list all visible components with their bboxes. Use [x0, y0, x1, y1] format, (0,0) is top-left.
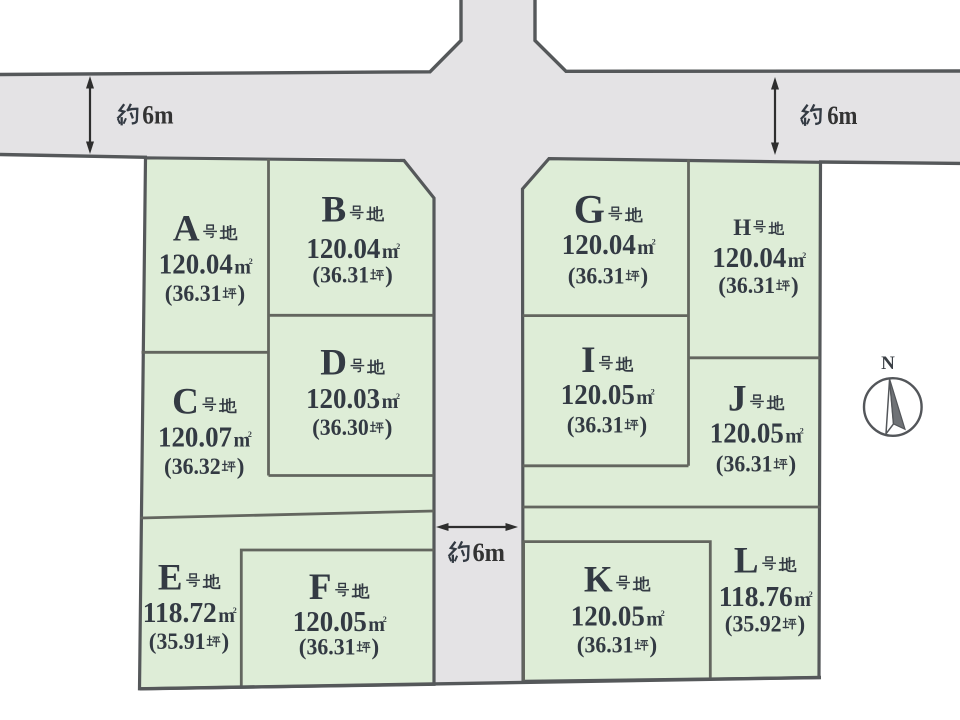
svg-text:2: 2 [661, 609, 665, 618]
svg-text:H: H [733, 215, 751, 240]
svg-text:): ) [238, 281, 246, 306]
svg-text:2: 2 [396, 392, 400, 401]
svg-text:): ) [640, 412, 648, 437]
svg-text:118.72: 118.72 [143, 597, 217, 629]
svg-text:2: 2 [802, 251, 806, 260]
svg-text:120.05: 120.05 [710, 418, 784, 450]
svg-text:): ) [791, 273, 799, 298]
svg-text:36.31: 36.31 [576, 263, 625, 288]
svg-text:): ) [650, 633, 658, 658]
svg-text:(: ( [568, 263, 576, 288]
svg-text:120.05: 120.05 [561, 379, 635, 411]
svg-text:120.05: 120.05 [293, 606, 367, 638]
svg-text:(: ( [164, 454, 172, 479]
svg-text:(: ( [299, 635, 307, 660]
svg-text:D: D [320, 343, 347, 384]
svg-text:K: K [584, 560, 613, 601]
svg-text:L: L [734, 540, 759, 581]
svg-text:36.31: 36.31 [726, 273, 775, 298]
svg-text:(: ( [312, 263, 320, 288]
svg-text:J: J [728, 379, 747, 420]
svg-text:): ) [222, 629, 230, 654]
svg-text:36.31: 36.31 [307, 635, 356, 660]
svg-text:(: ( [149, 629, 157, 654]
svg-text:2: 2 [383, 615, 387, 624]
svg-text:2: 2 [248, 430, 252, 439]
svg-text:G: G [574, 187, 605, 232]
svg-text:): ) [789, 452, 797, 477]
svg-text:I: I [581, 340, 595, 381]
svg-text:6m: 6m [827, 101, 858, 130]
svg-text:36.31: 36.31 [173, 281, 222, 306]
svg-text:): ) [798, 611, 806, 636]
svg-text:2: 2 [396, 242, 400, 251]
svg-text:): ) [372, 635, 380, 660]
svg-text:E: E [158, 557, 183, 598]
svg-text:2: 2 [800, 426, 804, 435]
svg-text:(: ( [312, 415, 320, 440]
svg-text:): ) [641, 263, 649, 288]
svg-text:120.04: 120.04 [712, 242, 786, 274]
svg-text:120.03: 120.03 [306, 383, 380, 415]
svg-text:120.04: 120.04 [562, 229, 636, 261]
svg-text:2: 2 [249, 257, 253, 266]
svg-text:36.32: 36.32 [172, 454, 221, 479]
svg-text:N: N [881, 353, 895, 374]
svg-text:36.31: 36.31 [575, 412, 624, 437]
svg-text:): ) [385, 415, 393, 440]
svg-text:36.30: 36.30 [320, 415, 369, 440]
svg-text:2: 2 [233, 606, 237, 615]
svg-text:2: 2 [651, 388, 655, 397]
svg-text:): ) [237, 454, 245, 479]
svg-text:36.31: 36.31 [724, 452, 773, 477]
svg-text:120.04: 120.04 [159, 248, 233, 280]
svg-text:(: ( [716, 452, 724, 477]
svg-text:(: ( [725, 611, 733, 636]
svg-text:(: ( [165, 281, 173, 306]
svg-text:36.31: 36.31 [585, 633, 634, 658]
svg-text:120.05: 120.05 [571, 600, 645, 632]
svg-text:2: 2 [652, 238, 656, 247]
svg-text:6m: 6m [142, 101, 174, 130]
svg-text:6m: 6m [473, 538, 506, 567]
svg-text:120.07: 120.07 [158, 421, 232, 453]
svg-text:36.31: 36.31 [320, 263, 369, 288]
svg-text:F: F [309, 567, 332, 608]
svg-text:35.92: 35.92 [733, 611, 782, 636]
svg-text:C: C [172, 381, 199, 422]
svg-text:2: 2 [809, 590, 813, 599]
svg-text:118.76: 118.76 [719, 581, 793, 613]
svg-text:B: B [322, 190, 347, 231]
svg-text:(: ( [718, 273, 726, 298]
svg-text:): ) [385, 263, 393, 288]
svg-text:(: ( [567, 412, 575, 437]
svg-text:(: ( [577, 633, 585, 658]
svg-text:120.04: 120.04 [306, 233, 380, 265]
svg-text:35.91: 35.91 [157, 629, 206, 654]
svg-text:A: A [173, 209, 200, 250]
